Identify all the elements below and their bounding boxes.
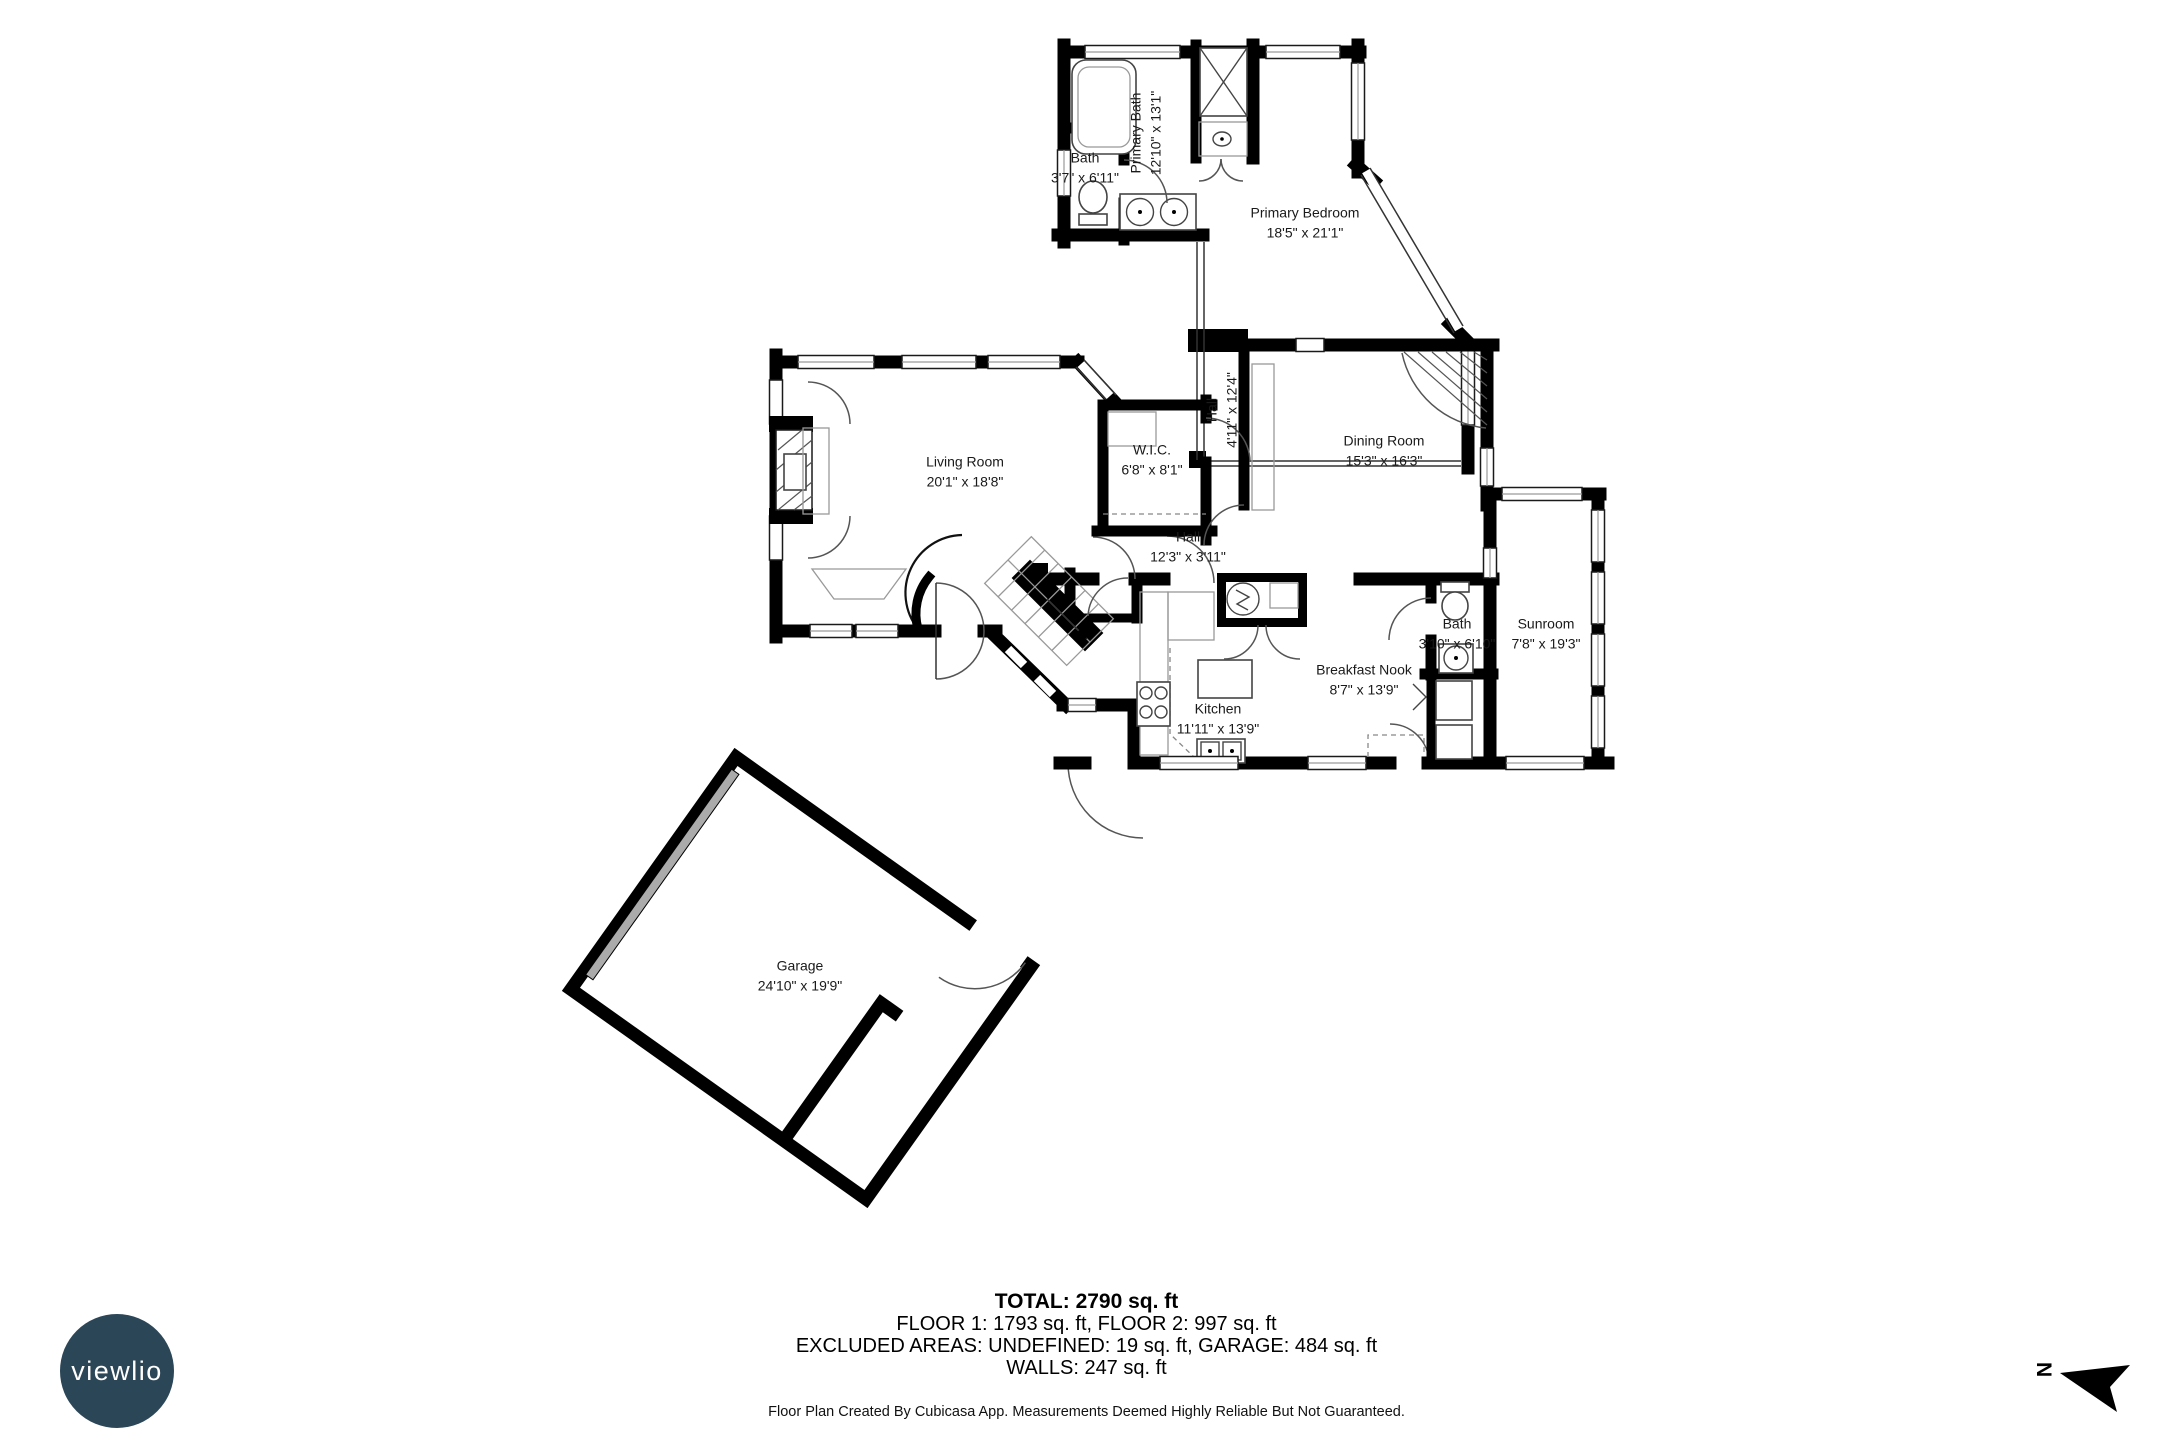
doorway-marker (1413, 684, 1426, 710)
room-dims: 12'3" x 3'11" (1150, 547, 1226, 567)
room-dims: 8'7" x 13'9" (1316, 680, 1412, 700)
kitchen-island (1198, 660, 1252, 698)
room-label-living-room: Living Room 20'1" x 18'8" (926, 452, 1004, 493)
room-label-primary-bath: Primary Bath 12'10" x 13'1" (1126, 91, 1167, 176)
room-label-bath-second-floor: Bath 3'7" x 6'11" (1051, 148, 1119, 189)
room-name: Breakfast Nook (1316, 660, 1412, 680)
laundry-closet (1222, 578, 1303, 660)
foyer-windows (1008, 649, 1096, 712)
room-dims: 11'11" x 13'9" (1177, 719, 1260, 739)
fridge-icon (1436, 681, 1472, 759)
room-name: Dining Room (1344, 431, 1425, 451)
room-name: Living Room (926, 452, 1004, 472)
fireplace-icon (769, 416, 813, 524)
dining-room-features (1252, 339, 1494, 511)
room-dims: 15'3" x 16'3" (1344, 451, 1425, 471)
room-label-kitchen: Kitchen 11'11" x 13'9" (1177, 699, 1260, 740)
room-label-garage: Garage 24'10" x 19'9" (758, 956, 843, 997)
sofa-outline (803, 428, 906, 599)
room-name: Hall (1202, 372, 1222, 448)
double-vanity-sinks-icon (1120, 194, 1196, 230)
room-name: Sunroom (1512, 614, 1581, 634)
credit-line: Floor Plan Created By Cubicasa App. Meas… (0, 1404, 2173, 1420)
room-label-hall-upper: Hall 4'11" x 12'4" (1202, 372, 1243, 448)
room-name: Hall (1150, 527, 1226, 547)
floor-plan-drawing (0, 0, 2173, 1448)
shower-vanity-sink-icon (1199, 122, 1247, 156)
room-dims: 3'10" x 6'10" (1419, 634, 1496, 654)
room-name: Primary Bath (1126, 91, 1146, 176)
room-label-dining-room: Dining Room 15'3" x 16'3" (1344, 431, 1425, 472)
room-name: W.I.C. (1121, 440, 1182, 460)
area-summary: TOTAL: 2790 sq. ft FLOOR 1: 1793 sq. ft,… (0, 1291, 2173, 1379)
room-label-hall-lower: Hall 12'3" x 3'11" (1150, 527, 1226, 568)
room-dims: 3'7" x 6'11" (1051, 168, 1119, 188)
room-dims: 18'5" x 21'1" (1251, 223, 1360, 243)
room-name: Garage (758, 956, 843, 976)
room-label-sunroom: Sunroom 7'8" x 19'3" (1512, 614, 1581, 655)
viewlio-logo: viewlio (60, 1314, 174, 1428)
logo-text: viewlio (71, 1356, 163, 1387)
room-name: Primary Bedroom (1251, 203, 1360, 223)
north-label: N (2032, 1362, 2055, 1377)
room-dims: 4'11" x 12'4" (1222, 372, 1242, 448)
room-label-bath-first-floor: Bath 3'10" x 6'10" (1419, 614, 1496, 655)
excluded-areas: EXCLUDED AREAS: UNDEFINED: 19 sq. ft, GA… (0, 1335, 2173, 1357)
room-dims: 6'8" x 8'1" (1121, 460, 1182, 480)
room-name: Kitchen (1177, 699, 1260, 719)
room-dims: 7'8" x 19'3" (1512, 634, 1581, 654)
floor2-bay-window (1361, 168, 1463, 333)
room-dims: 24'10" x 19'9" (758, 976, 843, 996)
stove-icon (1137, 682, 1170, 726)
room-label-primary-bedroom: Primary Bedroom 18'5" x 21'1" (1251, 203, 1360, 244)
floor-areas: FLOOR 1: 1793 sq. ft, FLOOR 2: 997 sq. f… (0, 1313, 2173, 1335)
room-name: Bath (1051, 148, 1119, 168)
living-room-walls (776, 355, 1140, 705)
room-label-breakfast-nook: Breakfast Nook 8'7" x 13'9" (1316, 660, 1412, 701)
room-dims: 20'1" x 18'8" (926, 472, 1004, 492)
room-dims: 12'10" x 13'1" (1146, 91, 1166, 176)
room-label-wic: W.I.C. 6'8" x 8'1" (1121, 440, 1182, 481)
floor-plan-page: Living Room 20'1" x 18'8" W.I.C. 6'8" x … (0, 0, 2173, 1448)
north-arrow-icon: N (2005, 1335, 2165, 1435)
wall-area: WALLS: 247 sq. ft (0, 1357, 2173, 1379)
room-name: Bath (1419, 614, 1496, 634)
total-area: TOTAL: 2790 sq. ft (0, 1291, 2173, 1313)
shower-icon (1200, 48, 1247, 116)
